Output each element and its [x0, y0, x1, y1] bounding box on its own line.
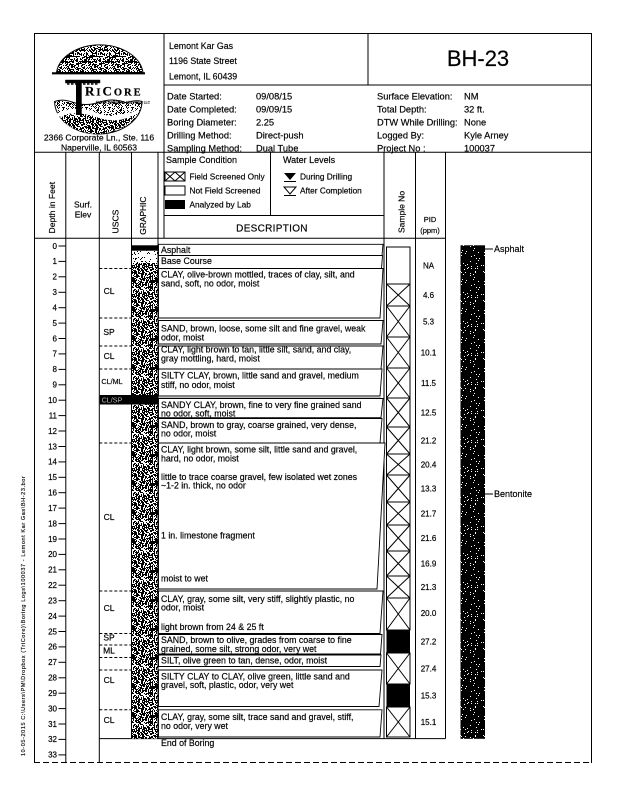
svg-text:2: 2	[53, 273, 58, 282]
svg-text:Direct-push: Direct-push	[256, 131, 304, 141]
svg-text:Sampling Method:: Sampling Method:	[167, 144, 242, 154]
svg-text:21: 21	[48, 566, 57, 575]
svg-text:2.25: 2.25	[256, 118, 274, 128]
svg-text:NM: NM	[464, 92, 478, 102]
svg-text:None: None	[464, 118, 486, 128]
svg-text:Asphalt: Asphalt	[161, 245, 191, 255]
svg-text:DTW While Drilling:: DTW While Drilling:	[377, 118, 458, 128]
svg-text:27.4: 27.4	[421, 664, 437, 673]
svg-text:15.1: 15.1	[421, 718, 437, 727]
svg-text:hard, no odor, moist: hard, no odor, moist	[161, 453, 239, 463]
svg-text:End of Boring: End of Boring	[161, 738, 214, 748]
svg-text:09/08/15: 09/08/15	[256, 92, 292, 102]
svg-text:20: 20	[48, 550, 57, 559]
svg-text:Base Course: Base Course	[161, 256, 212, 266]
svg-text:Field Screened Only: Field Screened Only	[190, 172, 266, 182]
svg-text:Not Field Screened: Not Field Screened	[190, 186, 261, 196]
svg-text:20.0: 20.0	[421, 609, 437, 618]
svg-text:light brown from 24 & 25 ft: light brown from 24 & 25 ft	[161, 622, 264, 632]
svg-text:CL: CL	[104, 286, 115, 296]
svg-text:16: 16	[48, 489, 57, 498]
svg-text:32: 32	[48, 735, 57, 744]
svg-text:24: 24	[48, 612, 57, 621]
svg-text:grained, some silt, strong odo: grained, some silt, strong odor, very we…	[161, 644, 317, 654]
svg-text:stiff, no odor, moist: stiff, no odor, moist	[161, 380, 235, 390]
svg-text:21.3: 21.3	[421, 583, 437, 592]
svg-text:Surf.: Surf.	[74, 200, 92, 210]
svg-text:CL/ML: CL/ML	[101, 377, 122, 386]
svg-text:DESCRIPTION: DESCRIPTION	[236, 224, 308, 235]
svg-text:9: 9	[53, 381, 58, 390]
svg-text:32 ft.: 32 ft.	[464, 105, 485, 115]
svg-text:Water Levels: Water Levels	[283, 155, 336, 165]
svg-text:15: 15	[48, 473, 57, 482]
svg-text:28: 28	[48, 674, 57, 683]
svg-text:During Drilling: During Drilling	[300, 172, 352, 182]
svg-text:Date Started:: Date Started:	[167, 92, 222, 102]
svg-text:1: 1	[53, 257, 58, 266]
svg-text:no odor, moist: no odor, moist	[161, 429, 217, 439]
svg-text:Total Depth:: Total Depth:	[377, 105, 427, 115]
svg-text:CL: CL	[104, 603, 115, 613]
svg-text:0: 0	[53, 242, 58, 251]
svg-text:Lemont, IL 60439: Lemont, IL 60439	[169, 71, 237, 81]
svg-text:no odor, soft, moist: no odor, soft, moist	[161, 408, 236, 418]
svg-text:21.2: 21.2	[421, 436, 437, 445]
svg-text:22: 22	[48, 581, 57, 590]
svg-text:17: 17	[48, 504, 57, 513]
svg-text:Boring Diameter:: Boring Diameter:	[167, 118, 237, 128]
svg-text:10.1: 10.1	[421, 348, 437, 357]
svg-text:27: 27	[48, 658, 57, 667]
svg-text:09/09/15: 09/09/15	[256, 105, 292, 115]
svg-text:6: 6	[53, 334, 58, 343]
svg-text:Elev: Elev	[75, 210, 92, 220]
svg-text:21.6: 21.6	[421, 534, 437, 543]
svg-text:After Completion: After Completion	[300, 186, 362, 196]
svg-text:3: 3	[53, 288, 58, 297]
svg-text:sand, soft, no odor, moist: sand, soft, no odor, moist	[161, 278, 260, 288]
svg-text:no odor, very wet: no odor, very wet	[161, 721, 229, 731]
svg-text:CL: CL	[104, 675, 115, 685]
svg-text:Sample Condition: Sample Condition	[166, 155, 237, 165]
svg-text:100037: 100037	[464, 144, 495, 154]
svg-text:16.9: 16.9	[421, 559, 437, 568]
svg-text:12.5: 12.5	[421, 408, 437, 417]
svg-text:11.5: 11.5	[421, 379, 437, 388]
svg-text:PID: PID	[424, 215, 437, 224]
svg-text:moist to wet: moist to wet	[161, 573, 208, 583]
svg-text:SILT, olive green to tan, dens: SILT, olive green to tan, dense, odor, m…	[161, 656, 328, 666]
svg-text:4.6: 4.6	[423, 291, 435, 300]
svg-text:2366 Corporate Ln., Ste. 116: 2366 Corporate Ln., Ste. 116	[44, 133, 154, 143]
svg-text:GRAPHIC: GRAPHIC	[138, 197, 148, 235]
svg-text:Dual Tube: Dual Tube	[256, 144, 298, 154]
svg-text:Drilling Method:: Drilling Method:	[167, 131, 232, 141]
svg-text:CL: CL	[104, 715, 115, 725]
svg-text:14: 14	[48, 458, 57, 467]
svg-text:25: 25	[48, 627, 57, 636]
svg-text:NA: NA	[423, 261, 435, 270]
svg-text:ML: ML	[103, 646, 115, 656]
svg-text:Analyzed by Lab: Analyzed by Lab	[190, 200, 252, 210]
svg-text:18: 18	[48, 519, 57, 528]
svg-text:CL/SP: CL/SP	[102, 396, 123, 405]
svg-text:~1-2 in. thick, no odor: ~1-2 in. thick, no odor	[161, 481, 246, 491]
svg-text:Sample No: Sample No	[397, 191, 407, 233]
svg-text:13.3: 13.3	[421, 484, 437, 493]
svg-text:21.7: 21.7	[421, 509, 437, 518]
svg-text:12: 12	[48, 427, 57, 436]
svg-text:5.3: 5.3	[423, 317, 435, 326]
svg-text:10: 10	[48, 396, 57, 405]
svg-text:5: 5	[53, 319, 58, 328]
svg-text:SP: SP	[103, 327, 115, 337]
svg-text:Logged By:: Logged By:	[377, 131, 424, 141]
svg-text:ENVIRONMENTAL SERVICES LLC: ENVIRONMENTAL SERVICES LLC	[96, 101, 151, 105]
svg-text:gravel, soft, plastic, odor, v: gravel, soft, plastic, odor, very wet	[161, 680, 294, 690]
svg-text:19: 19	[48, 535, 57, 544]
svg-text:31: 31	[48, 720, 57, 729]
svg-text:odor, moist: odor, moist	[161, 332, 205, 342]
svg-text:Naperville, IL 60563: Naperville, IL 60563	[61, 143, 137, 153]
svg-text:4: 4	[53, 304, 58, 313]
svg-text:Depth in Feet: Depth in Feet	[47, 181, 57, 233]
svg-text:15.3: 15.3	[421, 691, 437, 700]
svg-text:13: 13	[48, 442, 57, 451]
svg-text:1196 State Street: 1196 State Street	[169, 56, 237, 66]
svg-text:Date Completed:: Date Completed:	[167, 105, 237, 115]
svg-text:Kyle Arney: Kyle Arney	[464, 131, 509, 141]
svg-text:Bentonite: Bentonite	[494, 489, 532, 499]
svg-text:26: 26	[48, 643, 57, 652]
svg-text:gray mottling, hard, moist: gray mottling, hard, moist	[161, 354, 260, 364]
svg-text:BH-23: BH-23	[447, 46, 509, 71]
svg-text:10-05-2015 C:\Users\PM\Dropbo: 10-05-2015 C:\Users\PM\Dropbox (TriCore)…	[21, 476, 27, 756]
svg-text:30: 30	[48, 704, 57, 713]
svg-text:1 in. limestone fragment: 1 in. limestone fragment	[161, 531, 255, 541]
svg-text:20.4: 20.4	[421, 460, 437, 469]
svg-text:USCS: USCS	[111, 209, 121, 233]
svg-text:7: 7	[53, 350, 58, 359]
svg-text:Asphalt: Asphalt	[494, 244, 525, 254]
svg-text:23: 23	[48, 597, 57, 606]
svg-text:Surface Elevation:: Surface Elevation:	[377, 92, 452, 102]
svg-text:33: 33	[48, 751, 57, 760]
svg-text:8: 8	[53, 365, 58, 374]
svg-text:CL: CL	[104, 512, 115, 522]
svg-text:(ppm): (ppm)	[420, 226, 440, 235]
svg-text:11: 11	[49, 411, 58, 420]
svg-text:29: 29	[48, 689, 57, 698]
svg-text:odor, moist: odor, moist	[161, 603, 205, 613]
svg-text:27.2: 27.2	[421, 637, 437, 646]
svg-text:CL: CL	[104, 351, 115, 361]
svg-text:Lemont Kar Gas: Lemont Kar Gas	[169, 41, 234, 51]
